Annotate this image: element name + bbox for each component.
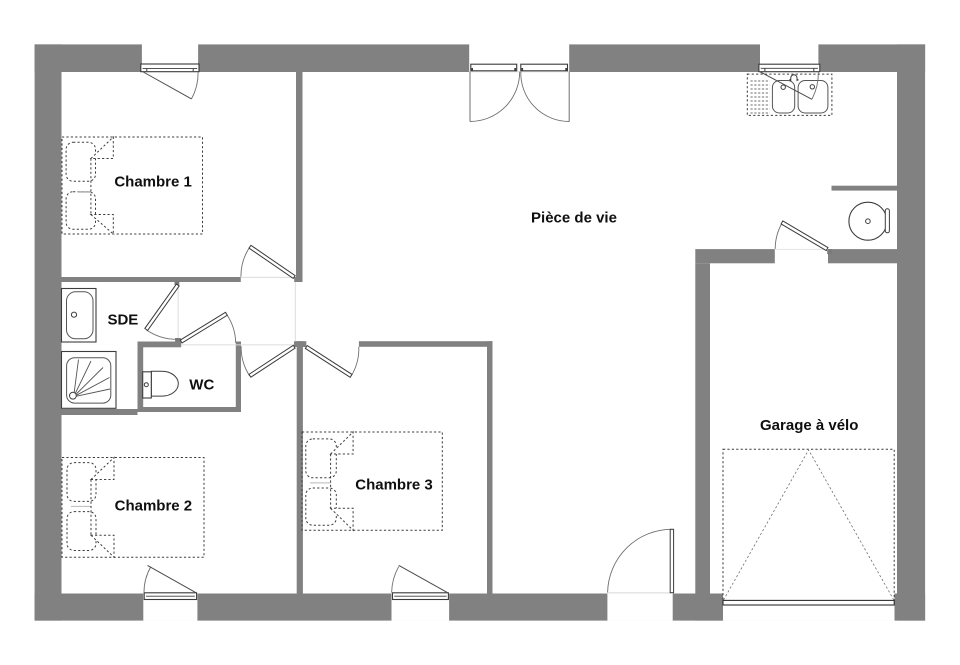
svg-text:WC: WC <box>189 377 214 394</box>
svg-text:Chambre 1: Chambre 1 <box>114 173 192 190</box>
svg-text:Chambre 3: Chambre 3 <box>355 476 433 493</box>
svg-text:Garage à vélo: Garage à vélo <box>760 417 858 434</box>
svg-text:Pièce de vie: Pièce de vie <box>531 209 617 226</box>
svg-text:Chambre 2: Chambre 2 <box>115 497 193 514</box>
svg-text:SDE: SDE <box>107 311 138 328</box>
